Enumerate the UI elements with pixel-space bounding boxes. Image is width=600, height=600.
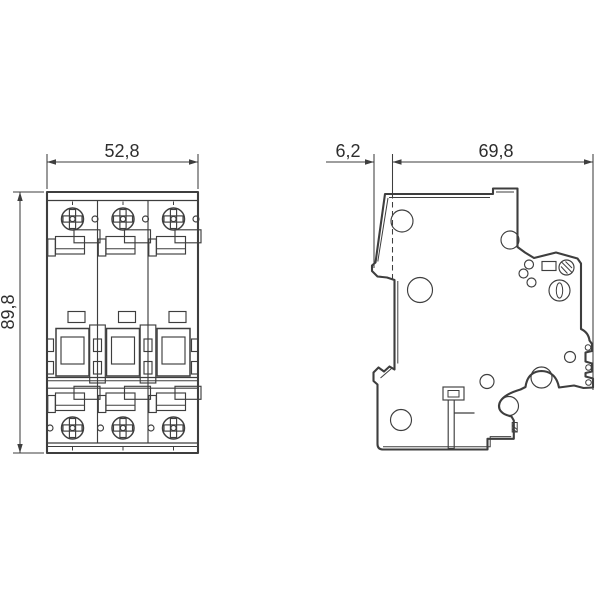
lobe-details — [542, 260, 574, 301]
rivet-hole — [391, 210, 413, 232]
inner-wall-lines — [378, 192, 514, 447]
marking-window — [68, 312, 85, 323]
terminal-screw-icon — [112, 208, 134, 230]
marking-windows — [68, 312, 186, 323]
clip-pin — [586, 380, 592, 386]
toggle-lever — [157, 329, 190, 377]
toggle-lever — [107, 329, 140, 377]
busbar-comb-bottom — [48, 386, 201, 412]
clip-window-inner — [448, 391, 459, 398]
clip-pin — [586, 365, 592, 371]
mould-marks — [73, 202, 174, 451]
clip-window — [443, 387, 464, 400]
arrowhead — [365, 159, 374, 164]
small-hole — [480, 375, 494, 389]
test-port-hole — [148, 425, 154, 431]
terminal-screw-icon — [163, 417, 185, 439]
clip-pin — [585, 345, 591, 351]
terminal-screw-icon — [62, 208, 84, 230]
terminal-screw-icon — [163, 208, 185, 230]
rivet-hole — [500, 397, 519, 416]
small-hole — [525, 260, 534, 269]
toggle-levers — [47, 325, 198, 388]
arrowhead-right — [584, 159, 593, 164]
terminal-screws-bottom — [47, 417, 185, 439]
toggle-lever — [56, 329, 89, 377]
technical-drawing: 52,8 89,8 6,2 69,8 — [0, 0, 600, 600]
test-port-hole — [98, 425, 104, 431]
edge-latch-slots — [47, 339, 198, 374]
slotted-screw-icon — [549, 280, 570, 301]
rivet-hole — [391, 410, 412, 431]
rivet-hole — [501, 231, 519, 249]
busbar-comb-top — [48, 230, 201, 256]
housing-holes — [391, 210, 576, 431]
arrowhead-top — [17, 192, 22, 201]
terminal-screw-icon — [62, 417, 84, 439]
terminal-screws-top — [62, 208, 200, 230]
front-view — [47, 192, 201, 453]
arrowhead-right — [189, 159, 198, 164]
dimension-front-height: 89,8 — [0, 192, 44, 453]
dim-side-body-depth-label: 69,8 — [478, 141, 513, 161]
dim-front-height-label: 89,8 — [0, 294, 18, 329]
marking-window — [119, 312, 136, 323]
arrowhead-left — [47, 159, 56, 164]
dimension-front-width: 52,8 — [47, 141, 198, 189]
drawing-canvas: 52,8 89,8 6,2 69,8 — [0, 0, 600, 600]
terminal-screw-icon — [112, 417, 134, 439]
rivet-hole — [408, 278, 433, 303]
hatched-screw-icon — [559, 260, 574, 275]
arrowhead-bottom — [17, 444, 22, 453]
small-hole — [565, 352, 576, 363]
arrowhead-left — [393, 159, 402, 164]
label-plate — [542, 262, 556, 271]
dim-front-width-label: 52,8 — [104, 141, 139, 161]
small-hole — [519, 269, 528, 278]
small-hole — [527, 278, 536, 287]
dimension-side-body-depth: 69,8 — [393, 141, 594, 390]
side-view — [372, 189, 593, 450]
dim-side-handle-depth-label: 6,2 — [335, 141, 360, 161]
marking-window — [169, 312, 186, 323]
